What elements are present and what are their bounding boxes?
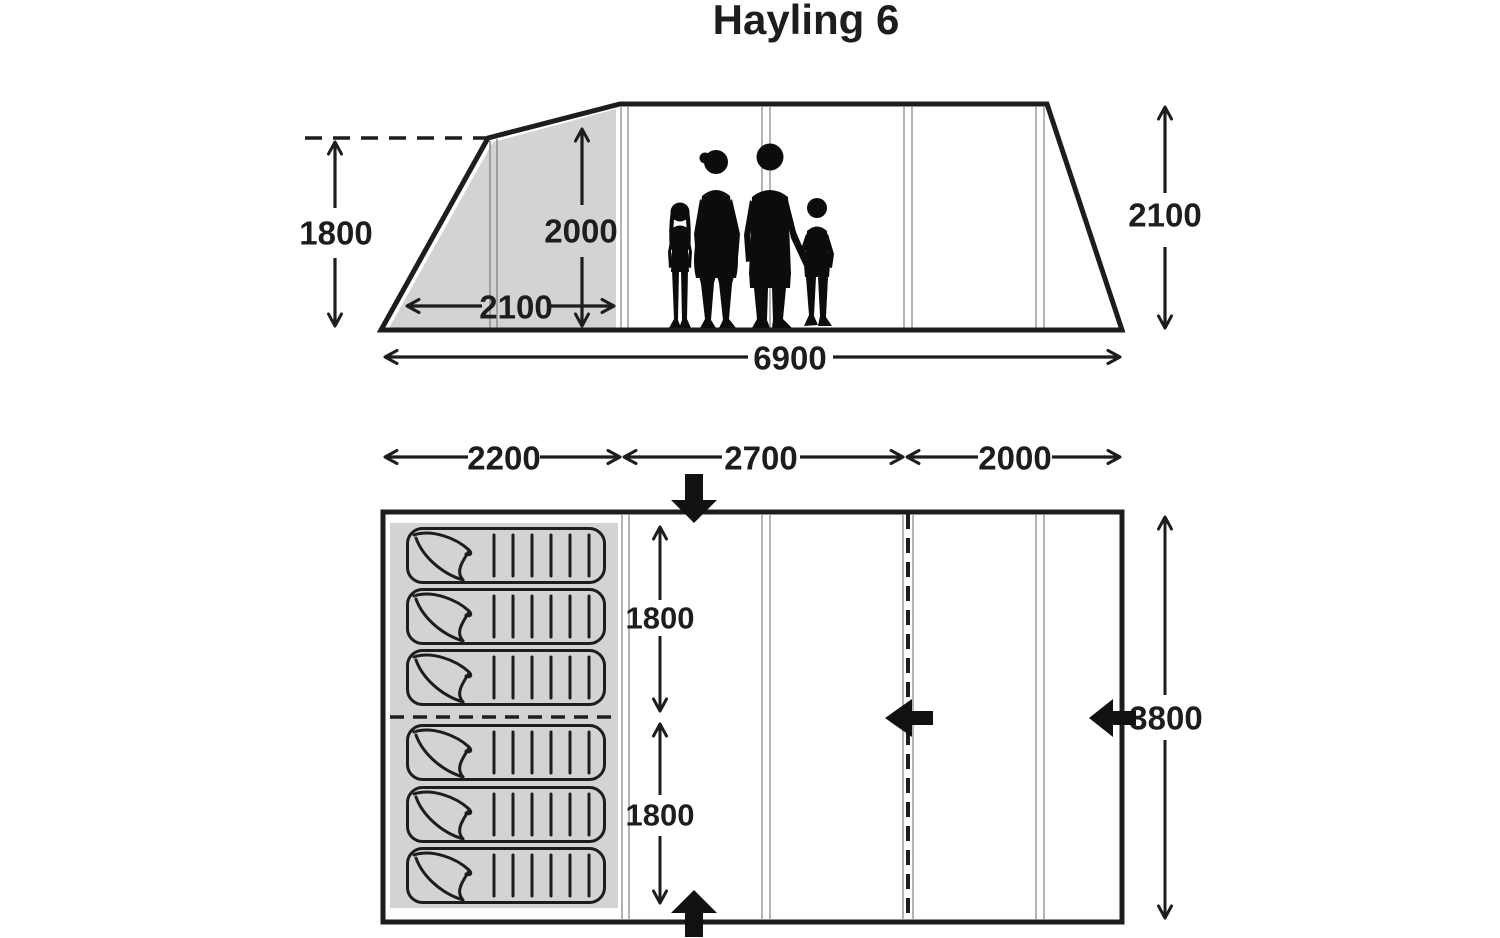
diagram-canvas: Hayling 6 [0,0,1500,938]
dim-label-1800-elevation: 1800 [299,215,372,252]
dim-label-2200: 2200 [467,440,540,477]
dim-label-3800: 3800 [1129,700,1202,737]
dim-label-2000-width: 2000 [978,440,1051,477]
dim-label-2100-depth: 2100 [479,289,552,326]
dim-label-1800-top: 1800 [626,601,695,636]
dim-section-widths: 2200 2700 2000 [385,440,1120,477]
dim-label-6900: 6900 [753,340,826,377]
dim-label-1800-bottom: 1800 [626,798,695,833]
dim-label-2000: 2000 [544,213,617,250]
dim-label-2100-height: 2100 [1128,197,1201,234]
dim-label-2700: 2700 [724,440,797,477]
page-title: Hayling 6 [713,0,900,43]
tent-dimensions-diagram: Hayling 6 [0,0,1500,938]
